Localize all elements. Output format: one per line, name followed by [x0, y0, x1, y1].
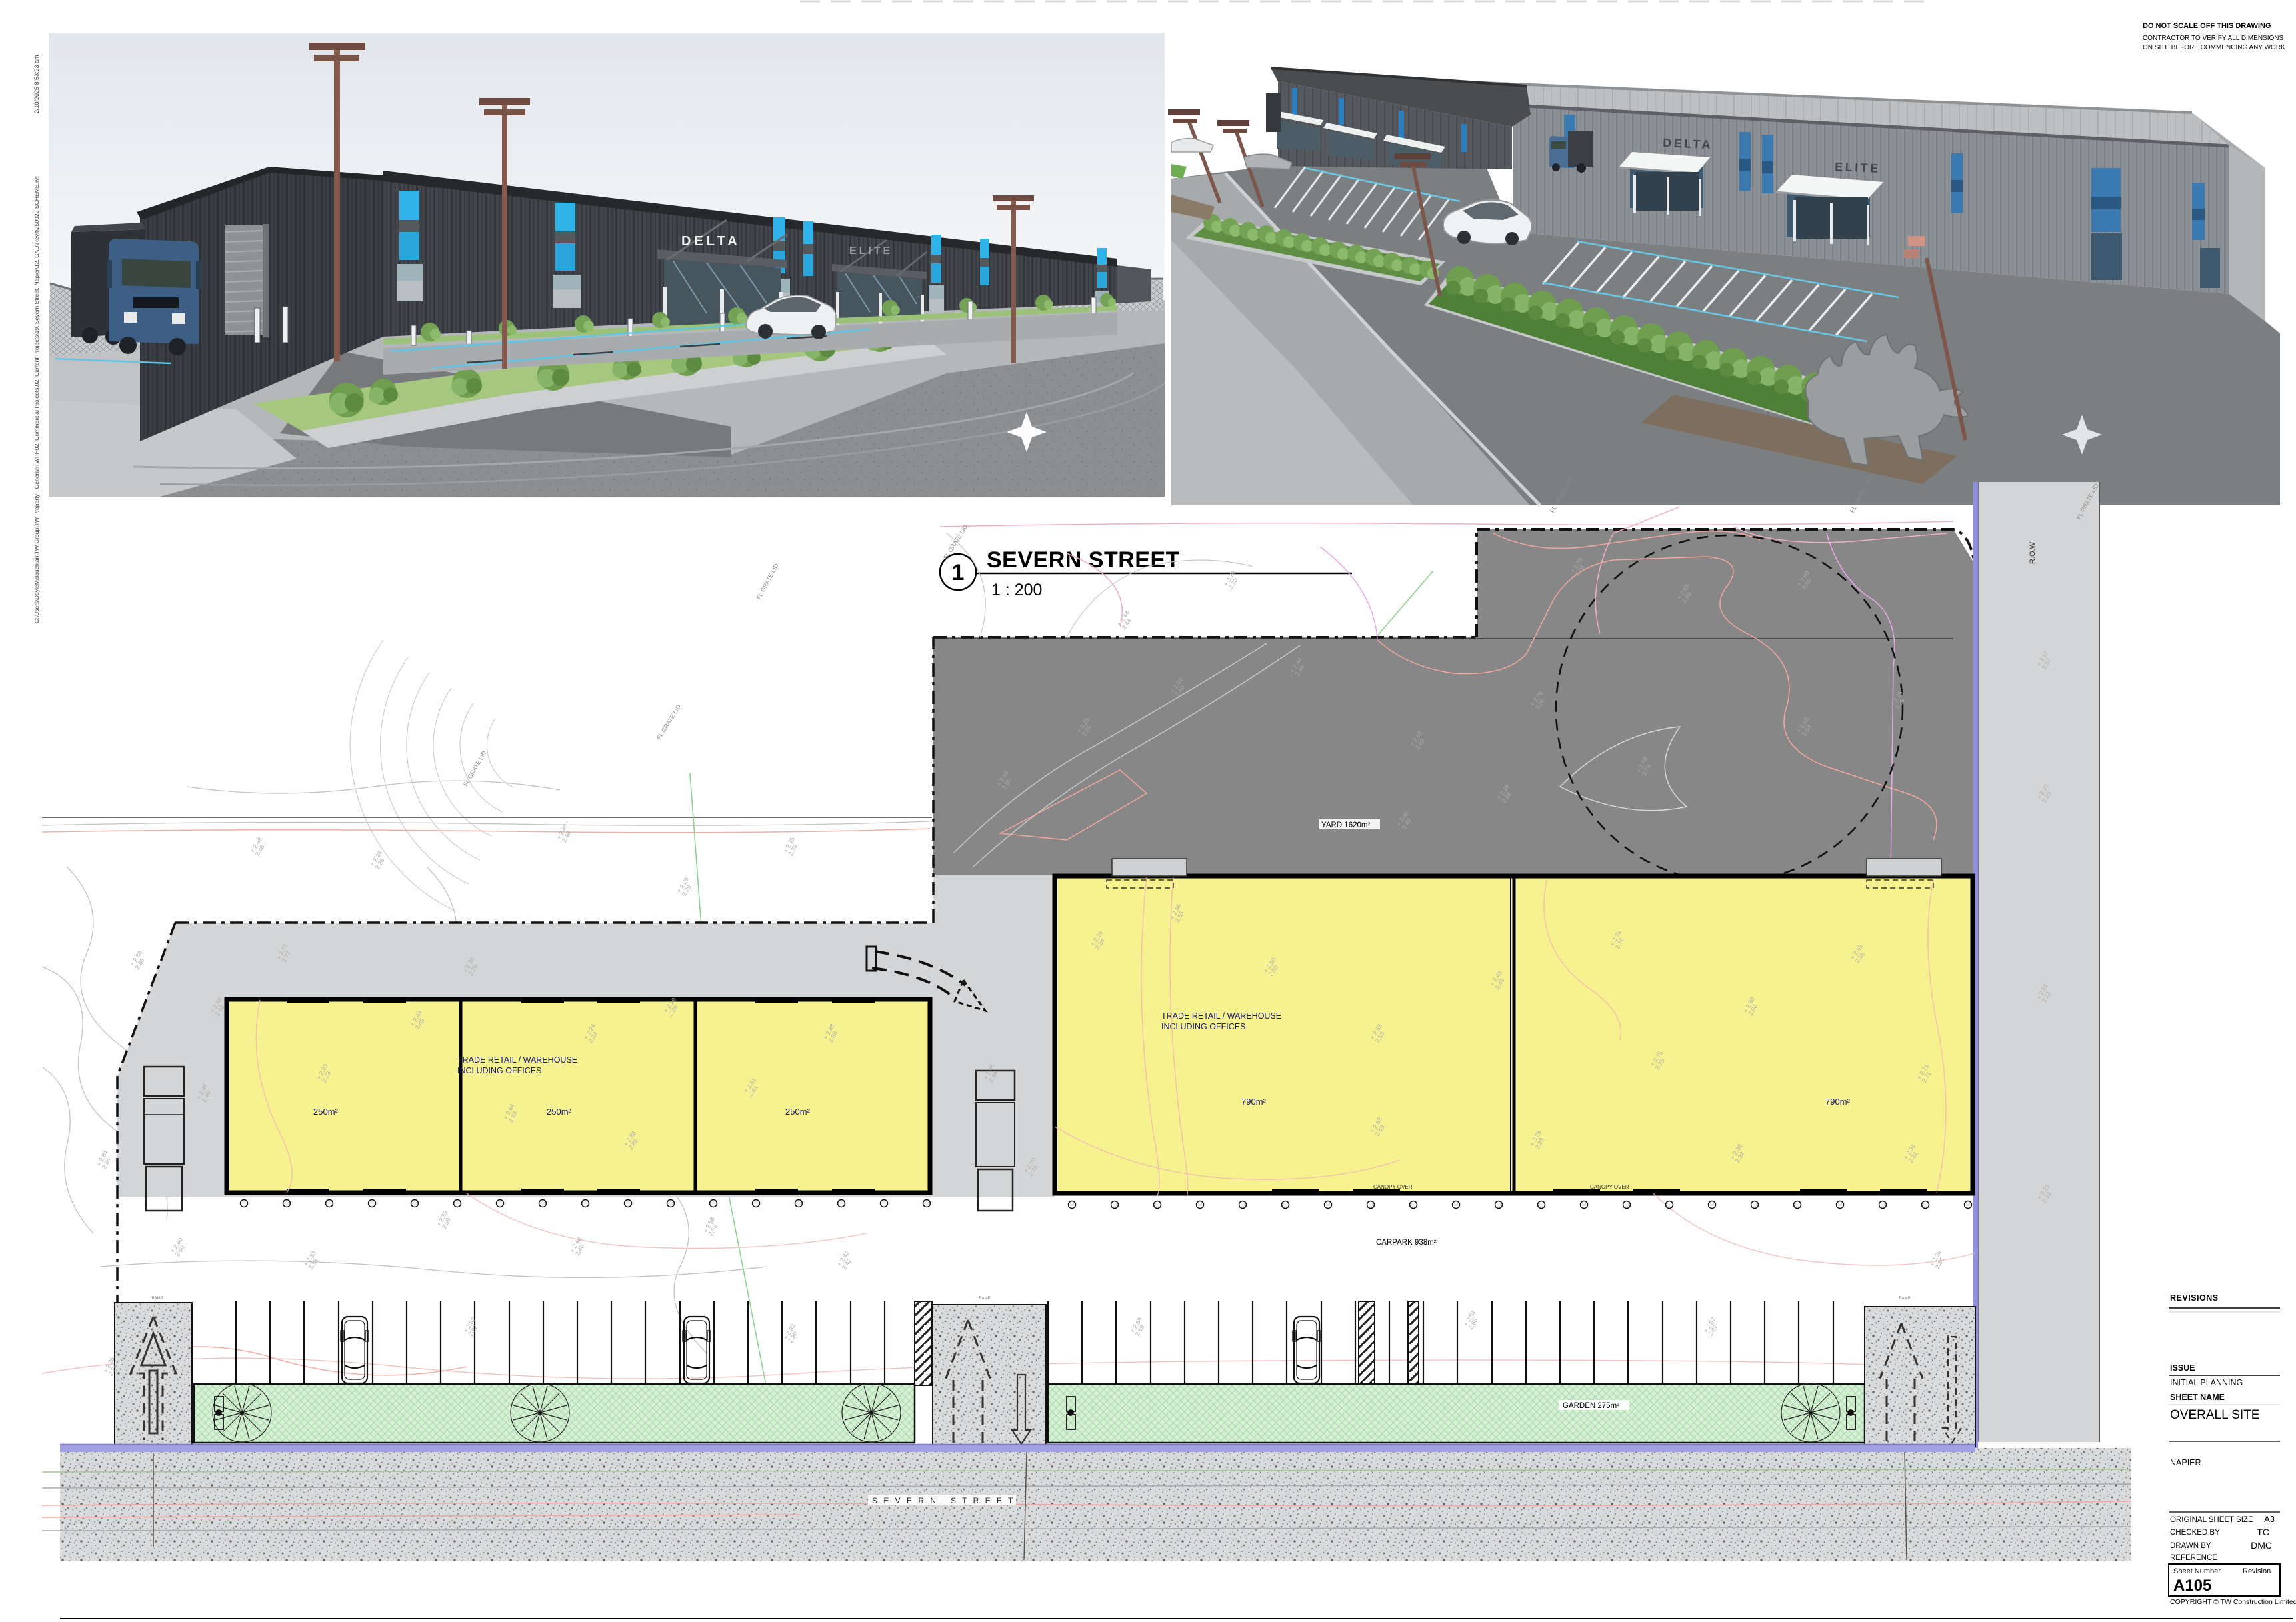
svg-text:1 : 200: 1 : 200: [991, 581, 1042, 599]
svg-text:NAPIER: NAPIER: [2170, 1458, 2201, 1467]
svg-text:OVERALL SITE: OVERALL SITE: [2170, 1408, 2259, 1422]
svg-text:R.O.W: R.O.W: [2029, 541, 2037, 564]
svg-text:INCLUDING OFFICES: INCLUDING OFFICES: [1161, 1022, 1245, 1031]
svg-text:790m²: 790m²: [1825, 1097, 1851, 1107]
svg-text:CANOPY OVER: CANOPY OVER: [1590, 1184, 1629, 1190]
svg-text:COPYRIGHT © TW Construction Li: COPYRIGHT © TW Construction Limited: [2170, 1598, 2296, 1606]
svg-text:RAMP: RAMP: [1899, 1297, 1910, 1301]
svg-text:250m²: 250m²: [547, 1107, 572, 1117]
svg-text:CONTRACTOR TO VERIFY ALL DIMEN: CONTRACTOR TO VERIFY ALL DIMENSIONS: [2143, 35, 2283, 42]
svg-text:250m²: 250m²: [785, 1107, 811, 1117]
svg-text:ISSUE: ISSUE: [2170, 1363, 2195, 1373]
svg-text:YARD 1620m²: YARD 1620m²: [1321, 821, 1370, 829]
svg-text:ELITE: ELITE: [849, 245, 893, 257]
svg-text:DELTA: DELTA: [1663, 136, 1713, 151]
svg-text:790m²: 790m²: [1241, 1097, 1267, 1107]
svg-text:250m²: 250m²: [313, 1107, 339, 1117]
svg-text:DO NOT SCALE OFF THIS DRAWING: DO NOT SCALE OFF THIS DRAWING: [2143, 22, 2271, 30]
svg-text:TRADE RETAIL / WAREHOUSE: TRADE RETAIL / WAREHOUSE: [1161, 1011, 1281, 1021]
svg-text:SHEET NAME: SHEET NAME: [2170, 1393, 2225, 1402]
svg-text:INITIAL PLANNING: INITIAL PLANNING: [2170, 1378, 2243, 1387]
svg-text:DELTA: DELTA: [681, 234, 741, 249]
svg-text:A3: A3: [2264, 1514, 2275, 1524]
svg-text:SEVERN STREET: SEVERN STREET: [987, 547, 1180, 573]
svg-text:S E V E R N S T R E E T: S E V E R N S T R E E T: [872, 1496, 1015, 1505]
svg-text:ELITE: ELITE: [1835, 160, 1881, 175]
svg-text:RAMP: RAMP: [979, 1297, 990, 1301]
svg-text:INCLUDING OFFICES: INCLUDING OFFICES: [457, 1066, 541, 1075]
svg-text:TRADE RETAIL / WAREHOUSE: TRADE RETAIL / WAREHOUSE: [457, 1055, 577, 1065]
svg-text:CANOPY OVER: CANOPY OVER: [1373, 1184, 1413, 1190]
svg-text:CHECKED BY: CHECKED BY: [2170, 1529, 2220, 1537]
svg-text:ON SITE BEFORE COMMENCING ANY: ON SITE BEFORE COMMENCING ANY WORK: [2143, 44, 2285, 51]
svg-text:DMC: DMC: [2251, 1540, 2272, 1551]
svg-text:ORIGINAL SHEET SIZE: ORIGINAL SHEET SIZE: [2170, 1516, 2253, 1524]
svg-text:C:\Users\DayleMclauchlan\TW Gr: C:\Users\DayleMclauchlan\TW Group\TW Pro…: [33, 176, 40, 623]
svg-text:FL GRATE LID: FL GRATE LID: [655, 703, 682, 741]
svg-text:DRAWN BY: DRAWN BY: [2170, 1542, 2211, 1550]
svg-text:Sheet Number: Sheet Number: [2173, 1567, 2221, 1575]
svg-text:FL GRATE LID: FL GRATE LID: [755, 562, 780, 601]
svg-text:CARPARK 938m²: CARPARK 938m²: [1376, 1239, 1437, 1247]
svg-text:Revision: Revision: [2243, 1567, 2271, 1575]
svg-text:RAMP: RAMP: [151, 1297, 163, 1301]
svg-text:REVISIONS: REVISIONS: [2170, 1293, 2219, 1303]
svg-text:GARDEN 275m²: GARDEN 275m²: [1563, 1402, 1619, 1410]
svg-text:TC: TC: [2257, 1527, 2269, 1537]
svg-text:2/10/2025 8:53:23 am: 2/10/2025 8:53:23 am: [33, 55, 40, 113]
svg-text:1: 1: [952, 560, 965, 585]
svg-text:REFERENCE: REFERENCE: [2170, 1554, 2217, 1562]
svg-text:A105: A105: [2173, 1577, 2211, 1595]
